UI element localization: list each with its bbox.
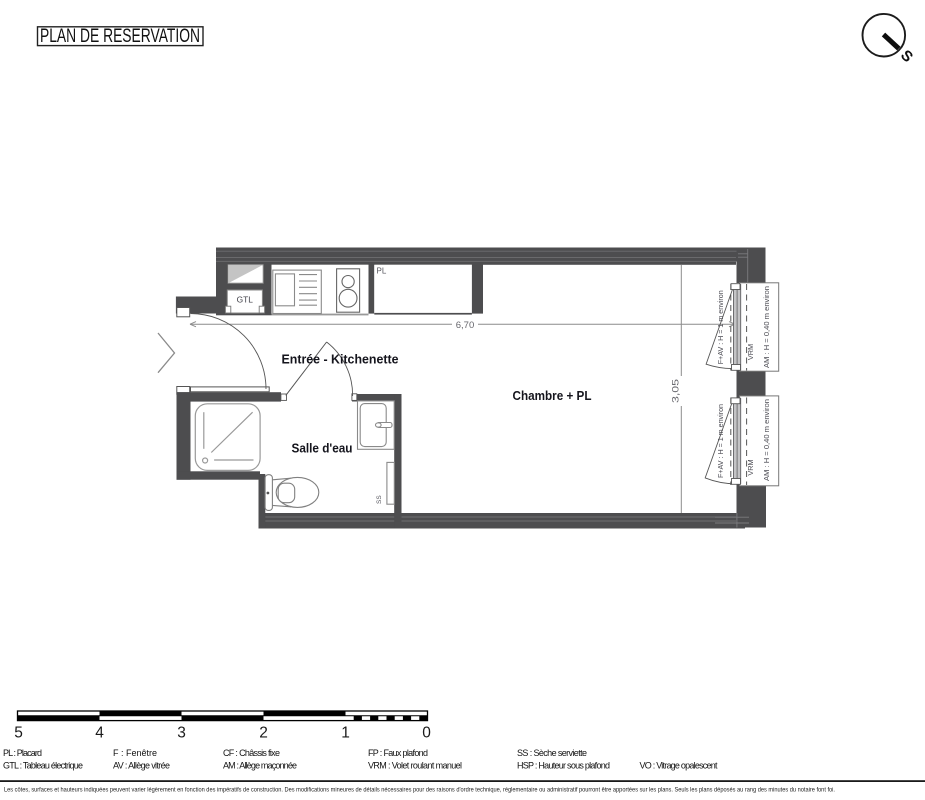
svg-text:F+AV : H = 1 m environ: F+AV : H = 1 m environ	[716, 290, 725, 364]
svg-text:PL: PL	[377, 267, 387, 276]
svg-text:VRM: VRM	[746, 344, 755, 360]
svg-text:Les côtes, surfaces et hauteur: Les côtes, surfaces et hauteurs indiquée…	[4, 788, 835, 794]
svg-text:GTL : Tableau électrique: GTL : Tableau électrique	[3, 761, 83, 771]
svg-text:PL : Placard: PL : Placard	[3, 748, 42, 758]
svg-text:5: 5	[14, 725, 23, 742]
svg-text:AM : H = 0,40 m environ: AM : H = 0,40 m environ	[762, 286, 771, 368]
svg-text:3,05: 3,05	[671, 379, 682, 403]
svg-text:AM : Allège maçonnée: AM : Allège maçonnée	[223, 761, 297, 771]
svg-text:3: 3	[177, 725, 186, 742]
svg-text:6,70: 6,70	[456, 320, 475, 331]
svg-text:F+AV : H = 1 m environ: F+AV : H = 1 m environ	[716, 404, 725, 478]
svg-text:Salle d'eau: Salle d'eau	[292, 441, 353, 456]
svg-text:FP : Faux plafond: FP : Faux plafond	[368, 748, 428, 758]
svg-text:HSP : Hauteur sous plafond: HSP : Hauteur sous plafond	[517, 761, 610, 771]
svg-text:0: 0	[422, 725, 431, 742]
svg-text:2: 2	[259, 725, 268, 742]
svg-text:1: 1	[341, 725, 350, 742]
svg-text:Chambre + PL: Chambre + PL	[513, 388, 592, 403]
svg-text:SS : Sèche serviette: SS : Sèche serviette	[517, 748, 587, 758]
svg-text:Entrée - Kitchenette: Entrée - Kitchenette	[282, 352, 399, 367]
svg-text:4: 4	[95, 725, 104, 742]
svg-text:GTL: GTL	[237, 294, 254, 304]
svg-text:F : Fenêtre: F : Fenêtre	[113, 748, 157, 758]
svg-text:VRM : Volet roulant manuel: VRM : Volet roulant manuel	[368, 761, 462, 771]
svg-text:AM : H = 0,40 m environ: AM : H = 0,40 m environ	[762, 399, 771, 481]
svg-text:VO : Vitrage opalescent: VO : Vitrage opalescent	[640, 761, 718, 771]
svg-text:SS: SS	[376, 495, 383, 504]
svg-text:AV : Allège vitrée: AV : Allège vitrée	[113, 761, 170, 771]
svg-text:CF : Châssis fixe: CF : Châssis fixe	[223, 748, 280, 758]
svg-text:VRM: VRM	[746, 459, 755, 475]
svg-text:PLAN DE RESERVATION: PLAN DE RESERVATION	[40, 26, 200, 47]
